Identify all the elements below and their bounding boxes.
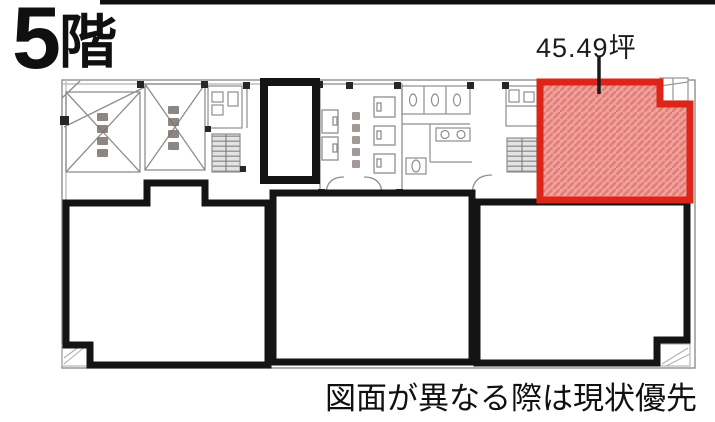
stairwell-right bbox=[507, 138, 537, 172]
floor-number: 5 bbox=[12, 0, 59, 87]
top-border-bar bbox=[100, 0, 715, 5]
floor-suffix: 階 bbox=[59, 10, 117, 75]
unit-left bbox=[66, 183, 268, 365]
restrooms bbox=[402, 86, 492, 195]
machine-room-right bbox=[64, 84, 205, 170]
floorplan-page: 5階 45.49坪 図面が異なる際は現状優先 bbox=[0, 0, 715, 422]
elevator-cab bbox=[322, 137, 338, 160]
service-room-left bbox=[208, 84, 247, 128]
exterior-stair-bottom-right bbox=[660, 344, 690, 366]
void-shaft bbox=[264, 82, 316, 180]
elevator-cab bbox=[322, 110, 338, 133]
elevator-bank bbox=[320, 84, 402, 196]
disclaimer-text: 図面が異なる際は現状優先 bbox=[325, 373, 697, 418]
stairwell-left bbox=[212, 134, 240, 172]
machine-room-text-marks bbox=[97, 106, 179, 157]
elevator-hall-text-marks bbox=[352, 112, 360, 168]
tenant-units bbox=[66, 183, 687, 365]
floor-label: 5階 bbox=[12, 0, 117, 82]
unit-center bbox=[273, 193, 472, 362]
unit-right bbox=[477, 202, 687, 363]
notch-room bbox=[660, 78, 688, 101]
service-room-right bbox=[506, 86, 538, 126]
highlighted-unit-area-label: 45.49坪 bbox=[536, 26, 637, 65]
